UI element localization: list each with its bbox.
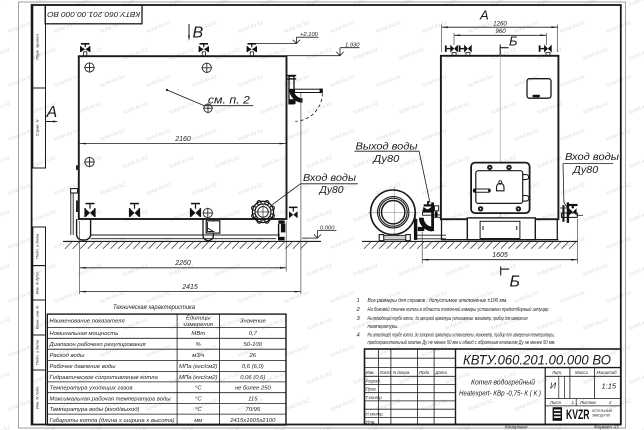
svg-text:0,06 (0,6): 0,06 (0,6) — [240, 375, 265, 381]
svg-text:МВт: МВт — [191, 331, 205, 337]
svg-text:1: 1 — [357, 298, 360, 304]
svg-text:На отводящей трубе котла ,до з: На отводящей трубе котла ,до запорной ар… — [368, 332, 555, 339]
svg-text:Рабочее давление воды: Рабочее давление воды — [50, 364, 117, 370]
svg-text:Значение: Значение — [240, 319, 267, 325]
svg-text:Листов: Листов — [579, 400, 596, 405]
svg-text:Разраб.: Разраб. — [366, 379, 382, 384]
svg-text:см. п. 2: см. п. 2 — [208, 95, 250, 107]
svg-text:Все размеры для справок , допу: Все размеры для справок , допустимое отк… — [368, 298, 508, 304]
svg-text:не более 250: не более 250 — [235, 386, 272, 392]
svg-text:0,7: 0,7 — [249, 331, 258, 337]
svg-text:50-100: 50-100 — [244, 342, 263, 348]
svg-text:МПа (кгс/см2): МПа (кгс/см2) — [179, 375, 218, 381]
svg-text:КОТЕЛЬНЫЙ: КОТЕЛЬНЫЙ — [592, 409, 613, 413]
svg-text:Копировал: Копировал — [505, 424, 528, 429]
svg-text:Максимальная рабочая температу: Максимальная рабочая температура воды — [50, 396, 172, 402]
svg-text:1605: 1605 — [492, 252, 508, 259]
svg-text:Heatexpert- КВр -0,75- К ( К ): Heatexpert- КВр -0,75- К ( К ) — [459, 388, 541, 397]
svg-text:Ду80: Ду80 — [372, 154, 400, 165]
svg-text:Перв. примен.: Перв. примен. — [35, 33, 40, 60]
svg-text:Справ. N: Справ. N — [35, 120, 40, 137]
svg-text:+2.100: +2.100 — [300, 32, 319, 38]
svg-text:Масштаб: Масштаб — [597, 370, 618, 375]
svg-text:Ду80: Ду80 — [318, 185, 343, 196]
svg-text:измерения: измерения — [184, 322, 214, 328]
svg-text:0,6 (6,0): 0,6 (6,0) — [242, 364, 264, 370]
svg-text:°С: °С — [195, 396, 202, 402]
svg-text:На боковой стенке котла в обла: На боковой стенке котла в области топочн… — [368, 306, 550, 313]
svg-text:м3/ч: м3/ч — [192, 353, 204, 359]
svg-text:Единицы: Единицы — [186, 316, 211, 322]
svg-text:Подп. и дата: Подп. и дата — [35, 233, 40, 259]
svg-text:Котел водогрейный: Котел водогрейный — [471, 378, 536, 387]
svg-text:На подводящей трубе котла ,: На подводящей трубе котла , до запорной … — [368, 315, 528, 322]
svg-text:Температура воды (вход/выход): Температура воды (вход/выход) — [50, 407, 140, 413]
svg-text:Вход воды: Вход воды — [565, 152, 620, 163]
svg-text:Лит.: Лит. — [551, 370, 562, 375]
svg-text:мм: мм — [194, 418, 202, 424]
svg-text:1.930: 1.930 — [345, 42, 360, 48]
svg-text:960: 960 — [495, 28, 506, 35]
svg-text:26: 26 — [249, 353, 257, 359]
svg-text:Изм.: Изм. — [366, 370, 375, 375]
svg-text:Наименование показателя: Наименование показателя — [50, 319, 126, 325]
svg-text:Вход воды: Вход воды — [303, 173, 357, 184]
svg-text:115: 115 — [248, 396, 258, 402]
svg-text:А: А — [479, 8, 489, 23]
svg-text:В: В — [193, 25, 204, 42]
svg-text:предохранительный клапан Ду н: предохранительный клапан Ду не менее 50 … — [368, 339, 556, 346]
svg-text:KVZR: KVZR — [566, 407, 590, 422]
svg-text:Инв. N дубл.: Инв. N дубл. — [35, 271, 40, 294]
svg-text:Гидравлическое сопротивление к: Гидравлическое сопротивление котла — [50, 375, 159, 381]
svg-text:2415х1605х2100: 2415х1605х2100 — [229, 418, 276, 424]
svg-text:Н.контр.: Н.контр. — [366, 411, 384, 416]
svg-text:Пров.: Пров. — [366, 387, 377, 392]
svg-text:2415: 2415 — [181, 284, 198, 291]
svg-text:Техническая характеристика: Техническая характеристика — [113, 304, 195, 311]
svg-text:2160: 2160 — [174, 136, 191, 143]
svg-text:И: И — [550, 381, 557, 391]
svg-text:Лист: Лист — [379, 370, 391, 375]
svg-text:температуры.: температуры. — [368, 324, 399, 330]
svg-text:Формат А3: Формат А3 — [594, 424, 619, 429]
svg-text:КВТУ.060.201.00.000 ВО: КВТУ.060.201.00.000 ВО — [47, 10, 140, 19]
svg-text:Ду80: Ду80 — [572, 165, 599, 176]
svg-text:°С: °С — [195, 386, 202, 392]
svg-text:Лист: Лист — [549, 400, 561, 405]
svg-text:Подп.: Подп. — [419, 370, 430, 375]
svg-text:Температура уходящих газов: Температура уходящих газов — [50, 386, 133, 392]
svg-text:N докум.: N докум. — [393, 370, 410, 375]
svg-text:°С: °С — [195, 407, 202, 413]
svg-text:Подп. и дата: Подп. и дата — [35, 339, 40, 365]
svg-text:0.000: 0.000 — [320, 225, 335, 231]
svg-text:1:15: 1:15 — [602, 382, 617, 391]
svg-text:2260: 2260 — [174, 260, 191, 267]
svg-text:Б: Б — [509, 34, 518, 49]
svg-text:Номинальная мощность: Номинальная мощность — [50, 331, 119, 337]
svg-text:Инв. N подл.: Инв. N подл. — [35, 386, 40, 409]
svg-text:1260: 1260 — [493, 20, 507, 27]
svg-text:Т.контр.: Т.контр. — [366, 395, 383, 400]
svg-text:Диапазон рабочего регулировани: Диапазон рабочего регулирования — [49, 342, 147, 348]
svg-text:МПа (кгс/см2): МПа (кгс/см2) — [179, 364, 218, 370]
svg-text:Взам. инв. N: Взам. инв. N — [35, 306, 40, 329]
svg-text:70/95: 70/95 — [245, 407, 260, 413]
svg-text:КВТУ.060.201.00.000 ВО: КВТУ.060.201.00.000 ВО — [463, 351, 611, 367]
svg-text:ЗАВОД РЭП: ЗАВОД РЭП — [592, 414, 611, 418]
svg-text:Б: Б — [510, 274, 520, 291]
svg-text:Утв.: Утв. — [366, 420, 376, 425]
svg-text:4: 4 — [357, 333, 360, 339]
svg-text:Дата: Дата — [435, 370, 448, 375]
svg-text:А: А — [46, 104, 58, 121]
svg-text:Габариты котла (длина х ширина: Габариты котла (длина х ширина х высота) — [50, 418, 175, 424]
svg-text:Масса: Масса — [575, 370, 588, 375]
svg-text:Расход воды: Расход воды — [50, 353, 86, 359]
svg-text:%: % — [196, 342, 201, 348]
